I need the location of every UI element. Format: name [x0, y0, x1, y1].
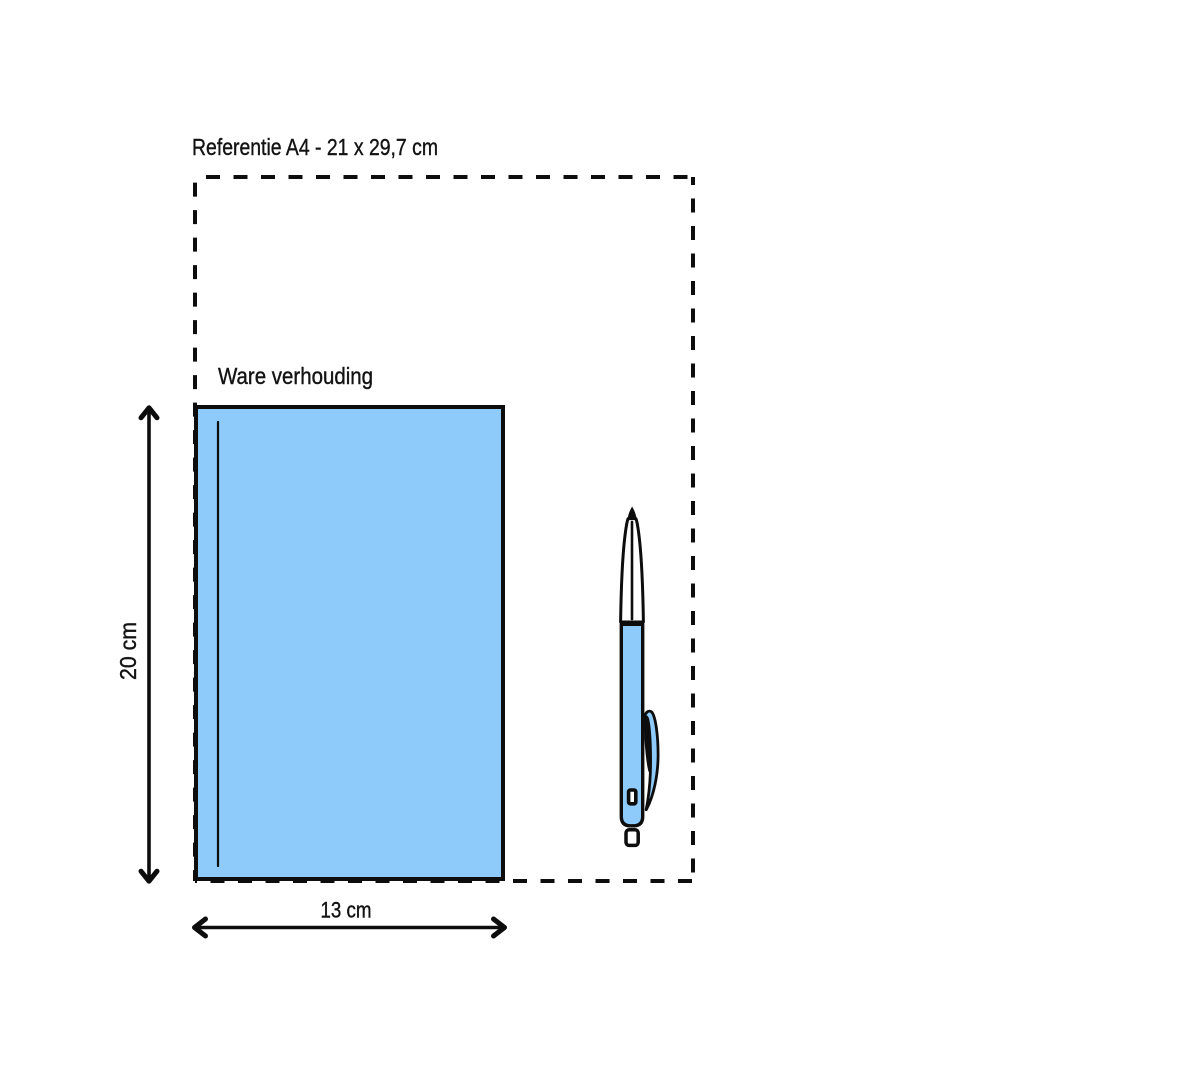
svg-text:13 cm: 13 cm: [321, 898, 372, 923]
svg-text:20 cm: 20 cm: [115, 622, 141, 680]
svg-text:Referentie A4 - 21 x 29,7 cm: Referentie A4 - 21 x 29,7 cm: [192, 134, 438, 160]
svg-text:Ware verhouding: Ware verhouding: [218, 363, 373, 389]
